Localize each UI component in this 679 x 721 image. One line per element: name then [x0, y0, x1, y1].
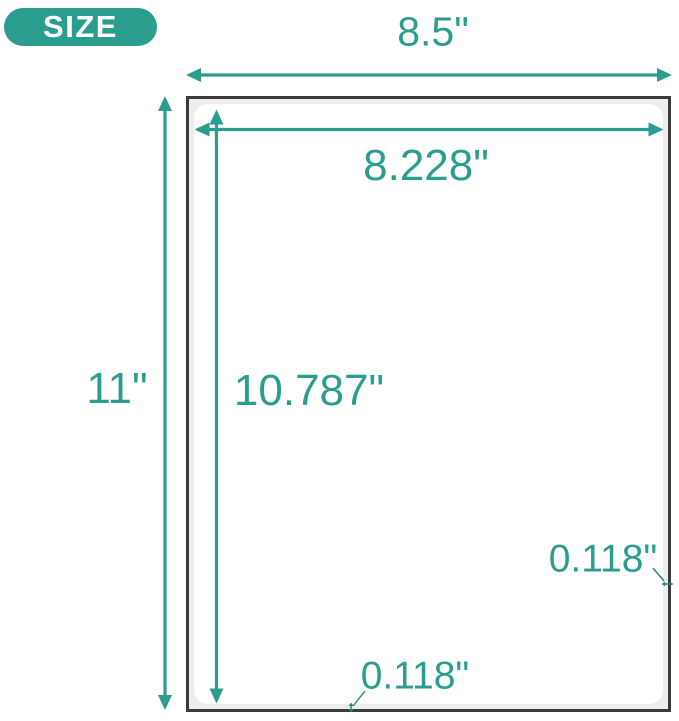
size-badge: SIZE [4, 8, 157, 46]
sheet-height-arrow [158, 96, 172, 710]
sheet-height-value: 11" [86, 367, 147, 411]
label-height-value: 10.787" [234, 369, 384, 413]
sheet-width-value: 8.5" [397, 12, 469, 53]
size-diagram: SIZE [0, 0, 679, 721]
right-margin-value: 0.118" [549, 540, 658, 579]
sheet-width-arrow [186, 68, 672, 82]
bottom-margin-value: 0.118" [361, 657, 470, 696]
label-width-value: 8.228" [363, 144, 489, 188]
